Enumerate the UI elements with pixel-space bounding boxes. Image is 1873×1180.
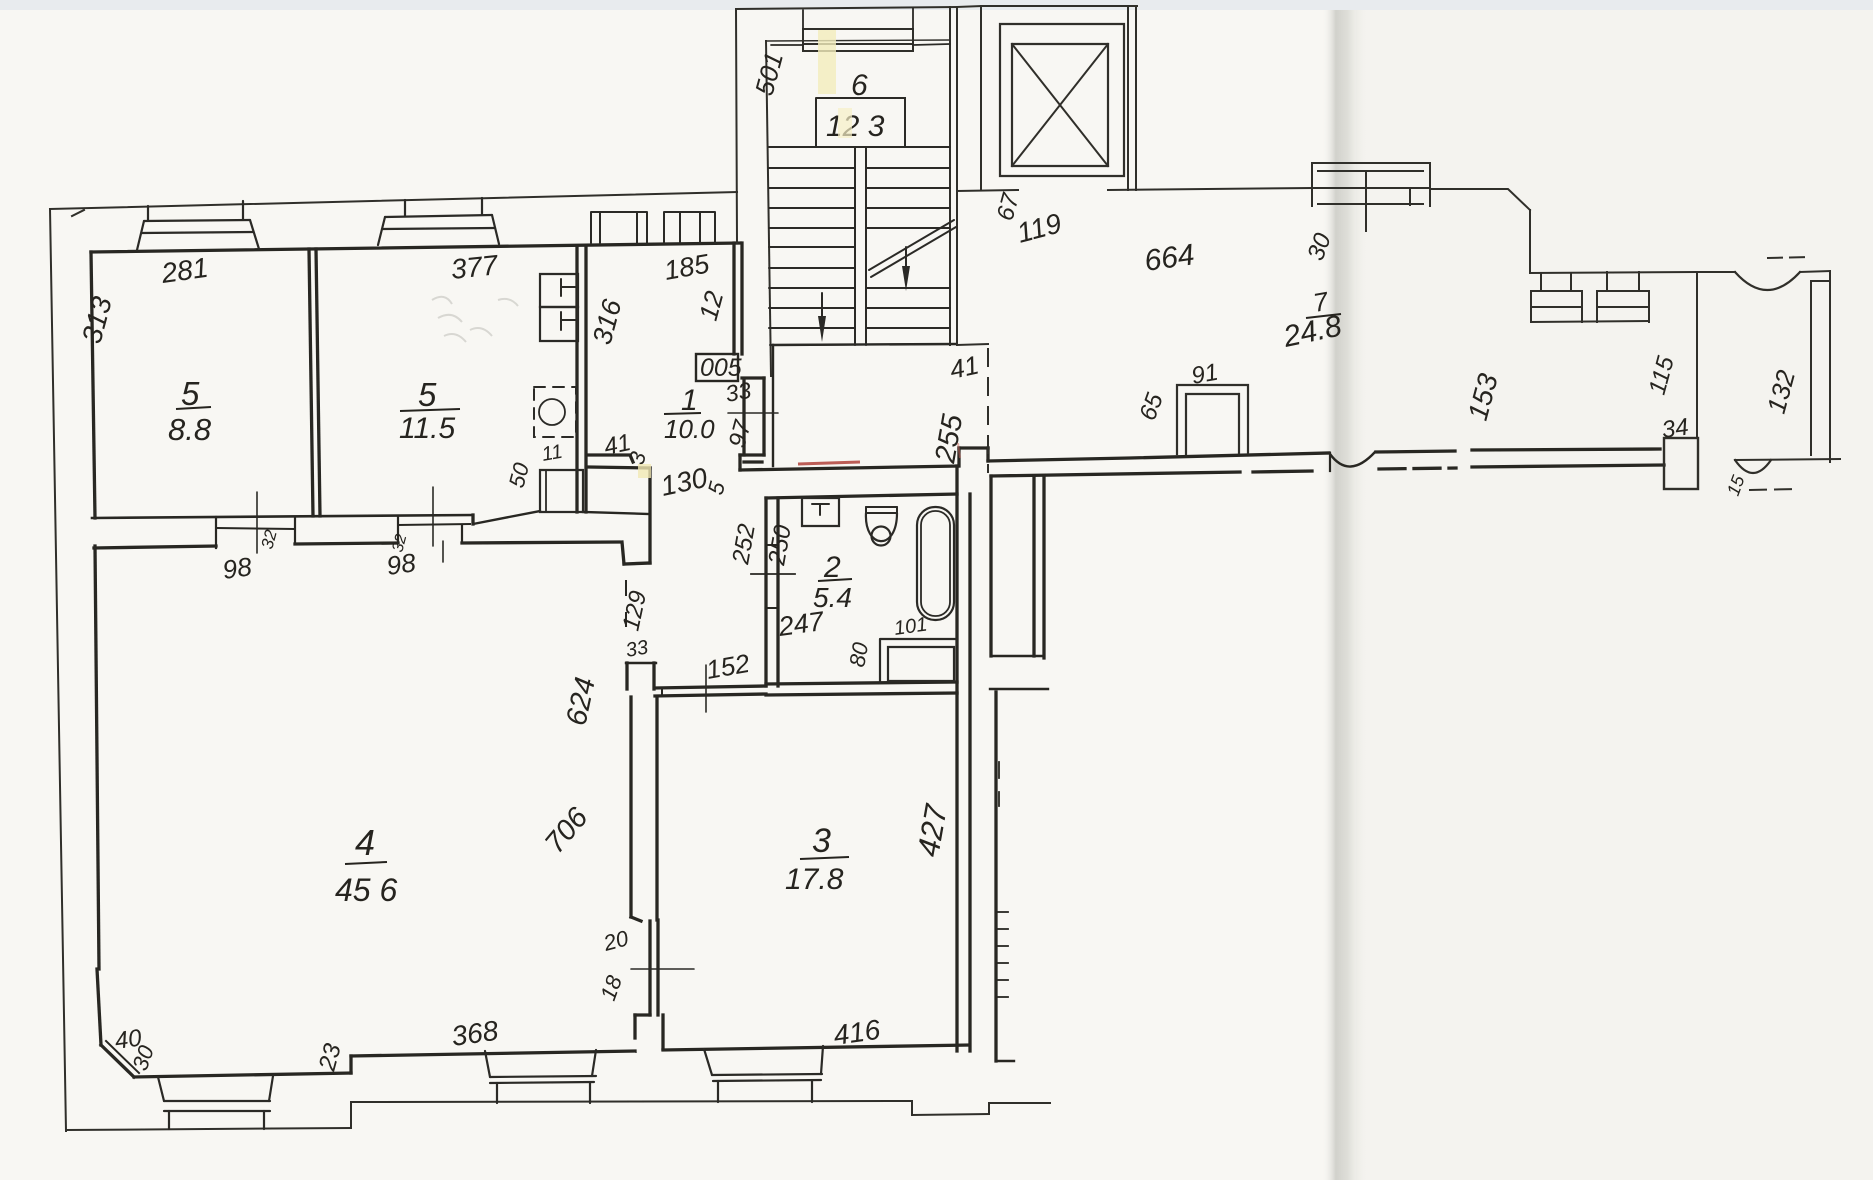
svg-text:281: 281: [159, 252, 211, 289]
svg-text:41: 41: [947, 350, 982, 385]
svg-text:34: 34: [1660, 413, 1690, 443]
svg-text:45 6: 45 6: [335, 872, 397, 908]
svg-text:11: 11: [540, 441, 564, 466]
svg-text:12 3: 12 3: [826, 110, 885, 143]
svg-text:4: 4: [355, 822, 375, 863]
svg-text:6: 6: [851, 69, 868, 102]
svg-text:8.8: 8.8: [168, 412, 212, 447]
svg-text:377: 377: [449, 249, 500, 285]
svg-text:80: 80: [844, 640, 873, 669]
svg-text:11.5: 11.5: [399, 412, 455, 445]
svg-text:101: 101: [893, 614, 929, 640]
svg-text:1: 1: [681, 384, 698, 417]
svg-text:17.8: 17.8: [785, 863, 844, 896]
svg-text:005: 005: [700, 354, 742, 382]
svg-text:416: 416: [832, 1014, 883, 1051]
svg-text:368: 368: [450, 1015, 501, 1052]
svg-text:10.0: 10.0: [664, 414, 715, 444]
svg-text:664: 664: [1142, 238, 1196, 278]
svg-text:98: 98: [221, 551, 254, 585]
svg-text:5: 5: [418, 376, 437, 413]
svg-text:3: 3: [812, 822, 831, 860]
svg-text:33: 33: [624, 636, 650, 662]
svg-text:5: 5: [181, 375, 200, 412]
svg-text:91: 91: [1189, 359, 1220, 390]
svg-text:33: 33: [723, 377, 753, 407]
